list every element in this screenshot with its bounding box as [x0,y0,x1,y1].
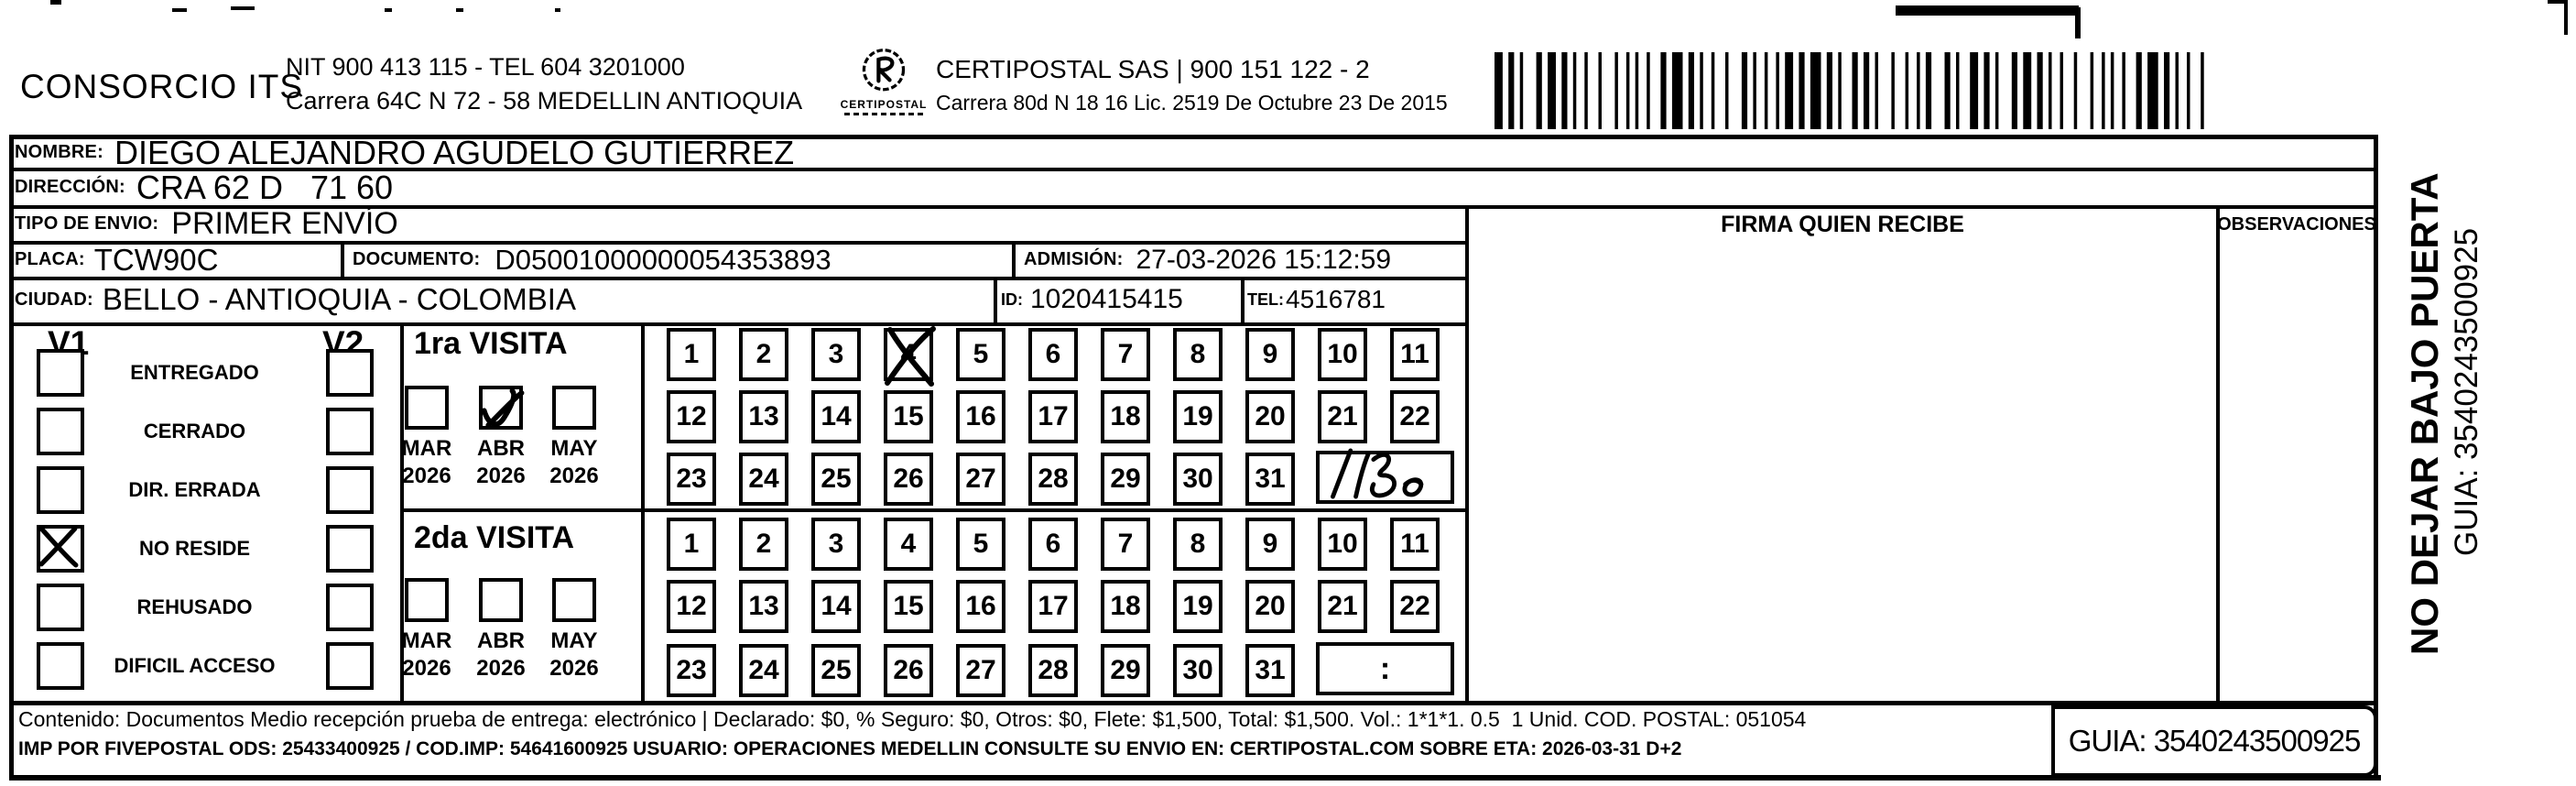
documento-value: D05001000000054353893 [495,244,831,277]
scan-artifact [555,8,560,12]
second-visit-day-2: 2 [739,518,788,571]
observaciones-column-header: OBSERVACIONES [2220,209,2374,240]
second-visit-day-5: 5 [956,518,1005,571]
second-visit-day-27: 27 [956,644,1005,697]
first-visit-day-8: 8 [1173,328,1223,381]
v1-rehusado-checkbox [37,584,84,631]
border-line [9,277,1469,280]
postal-shipping-form: CONSORCIO ITS NIT 900 413 115 - TEL 604 … [0,0,2576,786]
border-line [9,241,1469,245]
scan-artifact [2548,0,2568,4]
second-visit-day-28: 28 [1028,644,1078,697]
first-visit-day-18: 18 [1101,390,1150,443]
first-visit-month-label: ABR [464,436,538,462]
ciudad-label: CIUDAD: [15,289,93,311]
ciudad-group: CIUDAD: BELLO - ANTIOQUIA - COLOMBIA [15,282,576,317]
second-visit-day-13: 13 [739,580,788,633]
first-visit-title: 1ra VISITA [414,326,568,362]
first-visit-day-28: 28 [1028,453,1078,506]
scan-artifact [2075,7,2081,38]
first-visit-month-label: MAY [538,436,611,462]
tipo-envio-label: TIPO DE ENVIO: [15,213,158,235]
second-visit-day-29: 29 [1101,644,1150,697]
v1-cerrado-checkbox [37,408,84,455]
first-visit-day-17: 17 [1028,390,1078,443]
second-visit-day-12: 12 [667,580,716,633]
border-line [9,135,2377,139]
border-line [9,322,1469,326]
side-guia-number: GUIA: 3540243500925 [2446,124,2487,655]
second-visit-title: 2da VISITA [414,520,574,556]
first-visit-day-27: 27 [956,453,1005,506]
firma-column-header: FIRMA QUIEN RECIBE [1469,209,2216,240]
border-line [1465,205,1469,705]
tel-label: TEL: [1247,290,1284,310]
tel-group: TEL: 4516781 [1247,282,1386,317]
first-visit-day-7: 7 [1101,328,1150,381]
second-visit-day-22: 22 [1390,580,1440,633]
second-visit-day-15: 15 [884,580,933,633]
tel-value: 4516781 [1286,285,1386,314]
logo-name: CERTIPOSTAL [824,98,943,111]
first-visit-day-31: 31 [1245,453,1295,506]
direccion-label: DIRECCIÓN: [15,177,125,198]
first-visit-day-12: 12 [667,390,716,443]
v1-dir-errada-checkbox [37,466,84,514]
second-visit-day-30: 30 [1173,644,1223,697]
first-visit-year-label: 2026 [538,464,611,489]
second-visit-month-label: MAR [390,628,463,654]
first-visit-may-checkbox [552,386,596,430]
second-visit-day-9: 9 [1245,518,1295,571]
first-visit-day-25: 25 [811,453,861,506]
v2-no-reside-checkbox [326,525,374,573]
v2-dir-errada-checkbox [326,466,374,514]
logo-tagline-dashes [844,113,923,115]
status-row-cerrado: CERRADO [9,409,400,454]
second-visit-day-21: 21 [1318,580,1367,633]
second-visit-day-17: 17 [1028,580,1078,633]
direccion-row: DIRECCIÓN: CRA 62 D 71 60 [15,172,393,202]
id-group: ID: 1020415415 [1001,282,1183,317]
first-visit-day-14: 14 [811,390,861,443]
border-line [641,322,645,704]
documento-group: DOCUMENTO: D05001000000054353893 [353,246,831,274]
border-line [2374,135,2378,780]
partner-address-line: Carrera 80d N 18 16 Lic. 2519 De Octubre… [936,91,1448,115]
second-visit-day-7: 7 [1101,518,1150,571]
guia-box: GUIA: 3540243500925 [2051,705,2377,777]
border-line [9,701,2377,705]
border-line [9,168,2377,171]
second-visit-day-8: 8 [1173,518,1223,571]
documento-label: DOCUMENTO: [353,249,480,270]
ciudad-value: BELLO - ANTIOQUIA - COLOMBIA [103,282,576,317]
second-visit-mar-checkbox [405,578,449,622]
first-visit-day-9: 9 [1245,328,1295,381]
second-visit-day-19: 19 [1173,580,1223,633]
status-row-no-reside: NO RESIDE [9,526,400,572]
first-visit-day-21: 21 [1318,390,1367,443]
admision-group: ADMISIÓN: 27-03-2026 15:12:59 [1024,246,1391,274]
status-label-dificil-acceso: DIFICIL ACCESO [96,643,293,689]
placa-group: PLACA: TCW90C [15,246,218,274]
first-visit-mar-checkbox [405,386,449,430]
status-row-entregado: ENTREGADO [9,350,400,396]
footer-content-line: Contenido: Documentos Medio recepción pr… [18,707,1806,732]
v2-entregado-checkbox [326,349,374,397]
status-row-dir-errada: DIR. ERRADA [9,467,400,513]
border-line [1012,241,1016,280]
status-row-rehusado: REHUSADO [9,584,400,630]
second-visit-day-26: 26 [884,644,933,697]
status-panel: V1 V2 ENTREGADOCERRADODIR. ERRADANO RESI… [9,322,400,701]
first-visit-day-20: 20 [1245,390,1295,443]
second-visit-day-20: 20 [1245,580,1295,633]
id-label: ID: [1001,290,1023,310]
guia-number: GUIA: 3540243500925 [2069,724,2361,759]
footer-imp-line: IMP POR FIVEPOSTAL ODS: 25433400925 / CO… [18,738,1681,760]
second-visit-day-23: 23 [667,644,716,697]
first-visit-day-5: 5 [956,328,1005,381]
certipostal-logo-icon [855,46,912,99]
tipo-envio-row: TIPO DE ENVIO: PRIMER ENVÍO [15,210,398,238]
second-visit-day-1: 1 [667,518,716,571]
second-visit-may-checkbox [552,578,596,622]
company-name: CONSORCIO ITS [20,68,303,106]
id-value: 1020415415 [1030,284,1183,315]
first-visit-day-26: 26 [884,453,933,506]
first-visit-day-11: 11 [1390,328,1440,381]
side-note: NO DEJAR BAJO PUERTA GUIA: 3540243500925 [2403,124,2487,655]
scan-artifact [456,8,463,12]
border-line [341,241,344,280]
admision-label: ADMISIÓN: [1024,249,1123,270]
first-visit-day-19: 19 [1173,390,1223,443]
scan-artifact [172,8,187,12]
second-visit-day-10: 10 [1318,518,1367,571]
certipostal-logo: CERTIPOSTAL [824,46,943,115]
second-visit-day-16: 16 [956,580,1005,633]
first-visit-day-2: 2 [739,328,788,381]
placa-value: TCW90C [94,243,219,278]
second-visit-day-18: 18 [1101,580,1150,633]
second-visit-month-label: ABR [464,628,538,654]
second-visit-year-label: 2026 [390,656,463,682]
first-visit-note-box [1316,451,1454,504]
second-visit-day-31: 31 [1245,644,1295,697]
border-line [9,205,2377,209]
company-nit-line: NIT 900 413 115 - TEL 604 3201000 [286,53,685,82]
first-visit-day-15: 15 [884,390,933,443]
barcode [1495,52,2227,129]
side-warning-text: NO DEJAR BAJO PUERTA [2403,124,2446,655]
direccion-value: CRA 62 D 71 60 [136,169,393,207]
border-line [994,277,997,326]
second-visit-year-label: 2026 [538,656,611,682]
first-visit-day-4-crossed: 4 [884,328,933,381]
v2-cerrado-checkbox [326,408,374,455]
tipo-envio-value: PRIMER ENVÍO [171,206,397,242]
status-label-no-reside: NO RESIDE [96,526,293,572]
border-line [2216,205,2220,705]
v1-entregado-checkbox [37,349,84,397]
nombre-label: NOMBRE: [15,142,103,163]
border-line [9,775,2381,781]
first-visit-day-29: 29 [1101,453,1150,506]
status-label-cerrado: CERRADO [96,409,293,454]
first-visit-year-label: 2026 [390,464,463,489]
scan-artifact [50,0,61,5]
first-visit-day-16: 16 [956,390,1005,443]
border-line [1241,277,1245,326]
second-visit-day-4: 4 [884,518,933,571]
first-visit-month-label: MAR [390,436,463,462]
first-visit-day-3: 3 [811,328,861,381]
placa-label: PLACA: [15,249,85,270]
status-label-dir-errada: DIR. ERRADA [96,467,293,513]
second-visit-month-label: MAY [538,628,611,654]
second-visit-day-24: 24 [739,644,788,697]
scan-artifact [1896,5,2079,16]
second-visit-year-label: 2026 [464,656,538,682]
first-visit-day-1: 1 [667,328,716,381]
second-visit-day-11: 11 [1390,518,1440,571]
status-label-rehusado: REHUSADO [96,584,293,630]
first-visit-day-22: 22 [1390,390,1440,443]
status-row-dificil-acceso: DIFICIL ACCESO [9,643,400,689]
first-visit-day-23: 23 [667,453,716,506]
second-visit-day-6: 6 [1028,518,1078,571]
v1-no-reside-checkbox [37,525,84,573]
scan-artifact [2564,0,2568,35]
partner-line: CERTIPOSTAL SAS | 900 151 122 - 2 [936,55,1370,84]
first-visit-year-label: 2026 [464,464,538,489]
first-visit-abr-checkbox [479,386,523,430]
second-visit-abr-checkbox [479,578,523,622]
admision-value: 27-03-2026 15:12:59 [1136,245,1391,276]
scan-artifact [231,6,255,10]
v2-dificil-acceso-checkbox [326,642,374,690]
status-label-entregado: ENTREGADO [96,350,293,396]
first-visit-day-30: 30 [1173,453,1223,506]
second-visit-time-box: : [1316,642,1454,695]
border-line [9,135,14,780]
company-address-line: Carrera 64C N 72 - 58 MEDELLIN ANTIOQUIA [286,87,802,115]
first-visit-day-6: 6 [1028,328,1078,381]
scan-artifact [385,8,392,12]
first-visit-day-13: 13 [739,390,788,443]
v1-dificil-acceso-checkbox [37,642,84,690]
second-visit-day-14: 14 [811,580,861,633]
first-visit-day-10: 10 [1318,328,1367,381]
nombre-row: NOMBRE: DIEGO ALEJANDRO AGUDELO GUTIERRE… [15,137,794,168]
border-line [400,508,1469,512]
handwritten-note [1319,449,1451,500]
first-visit-day-24: 24 [739,453,788,506]
second-visit-day-25: 25 [811,644,861,697]
second-visit-day-3: 3 [811,518,861,571]
v2-rehusado-checkbox [326,584,374,631]
